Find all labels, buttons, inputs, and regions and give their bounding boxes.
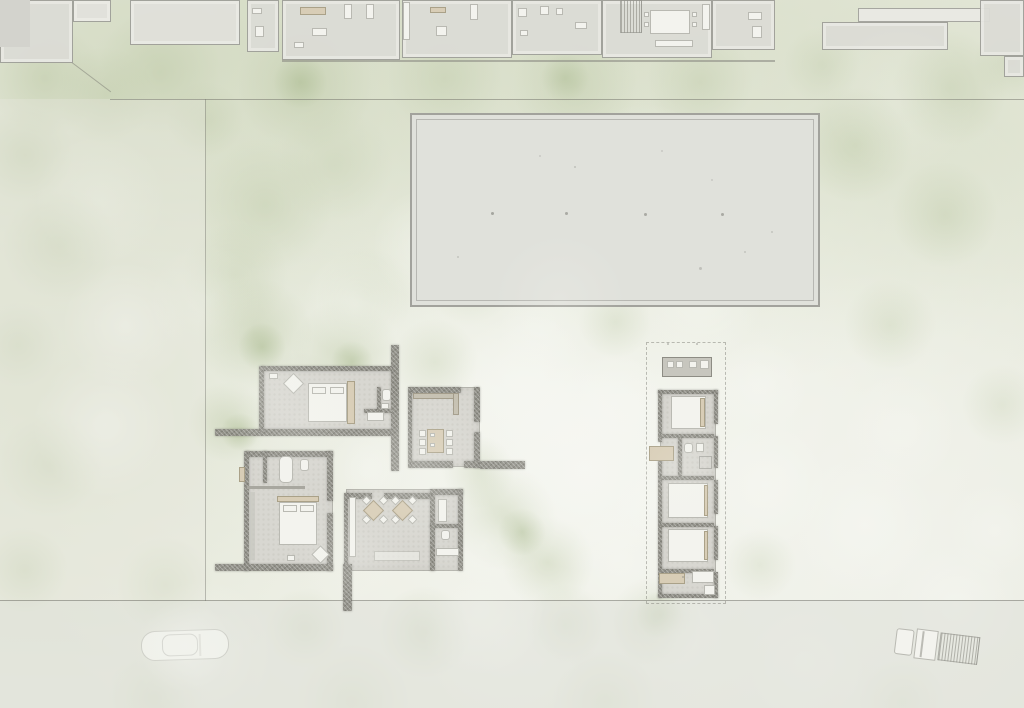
veil-5: [620, 410, 740, 530]
veil-10: [820, 20, 980, 180]
veil-9: [290, 490, 410, 610]
veil-11: [30, 130, 170, 270]
veil-2: [470, 345, 650, 525]
site-plan: [0, 0, 1024, 708]
veil-7: [145, 240, 265, 360]
veil-6: [410, 540, 550, 680]
veil-8: [490, 230, 630, 370]
atmosphere-overlay-layer: [0, 0, 1024, 708]
